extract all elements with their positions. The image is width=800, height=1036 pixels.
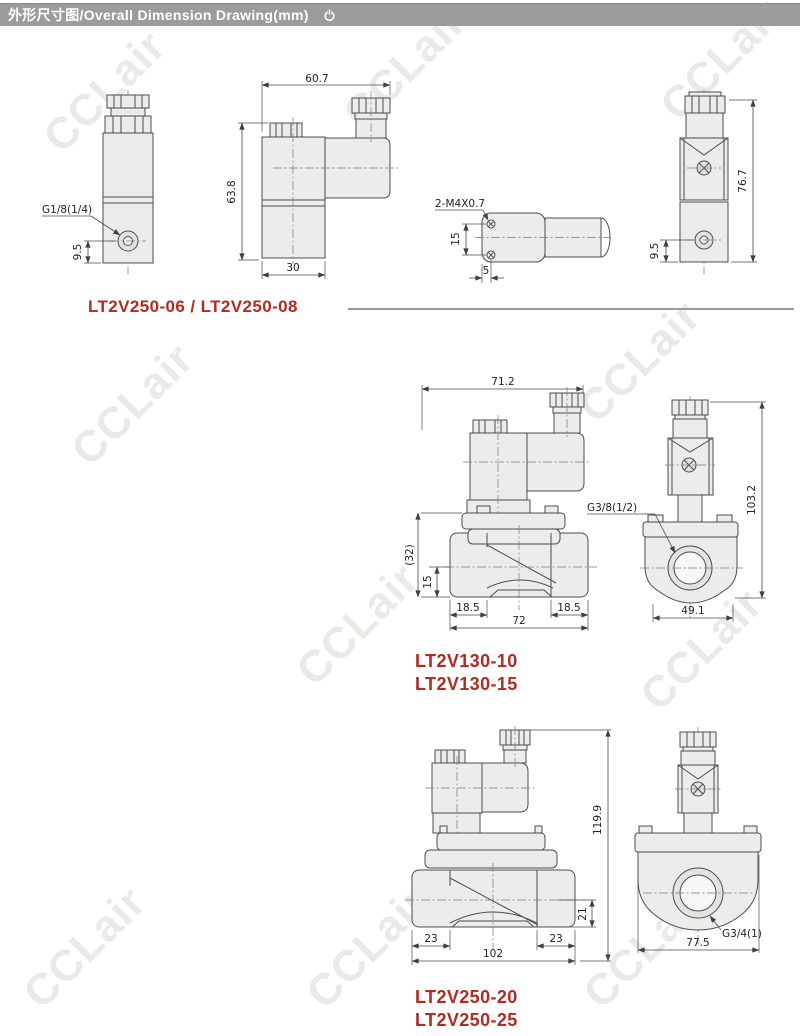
valve-body bbox=[412, 826, 575, 927]
coil-body bbox=[467, 433, 530, 513]
dim-port-height: 15 bbox=[422, 575, 434, 588]
port-thread-label: G1/8(1/4) bbox=[42, 204, 92, 216]
page-title: 外形尺寸图/Overall Dimension Drawing(mm) bbox=[8, 5, 309, 25]
dim-hole-offset: 5 bbox=[483, 265, 490, 277]
model-title-group3-line2: LT2V250-25 bbox=[415, 1010, 518, 1031]
dim-height: 103.2 bbox=[746, 485, 758, 515]
dim-width-top: 60.7 bbox=[305, 73, 328, 85]
drawing-lt2v250-06-bottom-view: 2-M4X0.7 15 5 bbox=[425, 193, 630, 293]
valve-body bbox=[640, 515, 743, 603]
dim-width-bottom: 72 bbox=[512, 615, 525, 627]
page-header: 外形尺寸图/Overall Dimension Drawing(mm) bbox=[0, 3, 800, 26]
model-title-group2-line2: LT2V130-15 bbox=[415, 674, 518, 695]
stem bbox=[678, 495, 702, 522]
thread-label: 2-M4X0.7 bbox=[435, 198, 485, 210]
dim-height-ref: (32) bbox=[404, 544, 416, 566]
coil-cap bbox=[685, 92, 725, 138]
connector-block bbox=[478, 730, 530, 812]
port-thread-label: G3/8(1/2) bbox=[587, 502, 637, 514]
title-rule bbox=[348, 308, 794, 310]
coil-cap bbox=[473, 420, 507, 433]
dim-port-left: 18.5 bbox=[456, 602, 479, 614]
dim-port-height: 9.5 bbox=[649, 243, 661, 260]
dim-height: 119.9 bbox=[592, 805, 604, 835]
watermark: CCLair bbox=[62, 334, 204, 476]
model-title-group3-line1: LT2V250-20 bbox=[415, 987, 518, 1008]
coil-cap bbox=[270, 123, 302, 137]
valve-body bbox=[635, 826, 761, 930]
coil-cap bbox=[680, 732, 716, 765]
coil-cap bbox=[105, 95, 151, 133]
dim-port-height: 21 bbox=[577, 907, 589, 920]
connector-block bbox=[325, 98, 390, 198]
drawing-lt2v250-20-side-view: 21 23 23 102 119.9 bbox=[400, 718, 620, 970]
drawing-lt2v250-06-rear-view: 76.7 9.5 bbox=[645, 85, 800, 285]
dim-port-right: 18.5 bbox=[557, 602, 580, 614]
valve-body bbox=[450, 506, 588, 597]
dim-width-top: 71.2 bbox=[491, 376, 514, 388]
valve-base bbox=[680, 202, 728, 262]
drawing-lt2v250-06-front-view: G1/8(1/4) 9.5 bbox=[35, 85, 215, 285]
dim-width-bottom: 102 bbox=[483, 948, 503, 960]
stem bbox=[684, 813, 712, 833]
dim-height: 63.8 bbox=[226, 180, 238, 203]
dim-width-bottom: 77.5 bbox=[686, 937, 709, 949]
drawing-lt2v250-20-front-view: G3/4(1) 77.5 bbox=[625, 722, 800, 967]
coil-cap bbox=[672, 400, 708, 438]
power-icon bbox=[323, 9, 336, 22]
coil-body bbox=[665, 438, 715, 495]
port-thread-label: G3/4(1) bbox=[722, 928, 762, 940]
model-title-group1: LT2V250-06 / LT2V250-08 bbox=[88, 297, 298, 317]
drawing-lt2v250-06-side-view: 60.7 63.8 30 bbox=[215, 72, 405, 287]
dim-port-right: 23 bbox=[549, 933, 562, 945]
dim-width-bottom: 49.1 bbox=[681, 605, 704, 617]
coil-body bbox=[680, 138, 728, 200]
dim-height: 76.7 bbox=[737, 169, 749, 192]
dim-width-bottom: 30 bbox=[286, 262, 299, 274]
coil-body bbox=[675, 765, 721, 813]
dim-port-height: 9.5 bbox=[72, 244, 84, 261]
valve-body bbox=[262, 137, 325, 258]
dim-hole-spacing: 15 bbox=[450, 232, 462, 245]
connector-block bbox=[527, 393, 584, 491]
model-title-group2-line1: LT2V130-10 bbox=[415, 651, 518, 672]
drawing-lt2v130-front-view: G3/8(1/2) 103.2 49.1 bbox=[585, 390, 800, 635]
dim-port-left: 23 bbox=[424, 933, 437, 945]
watermark: CCLair bbox=[14, 877, 156, 1019]
